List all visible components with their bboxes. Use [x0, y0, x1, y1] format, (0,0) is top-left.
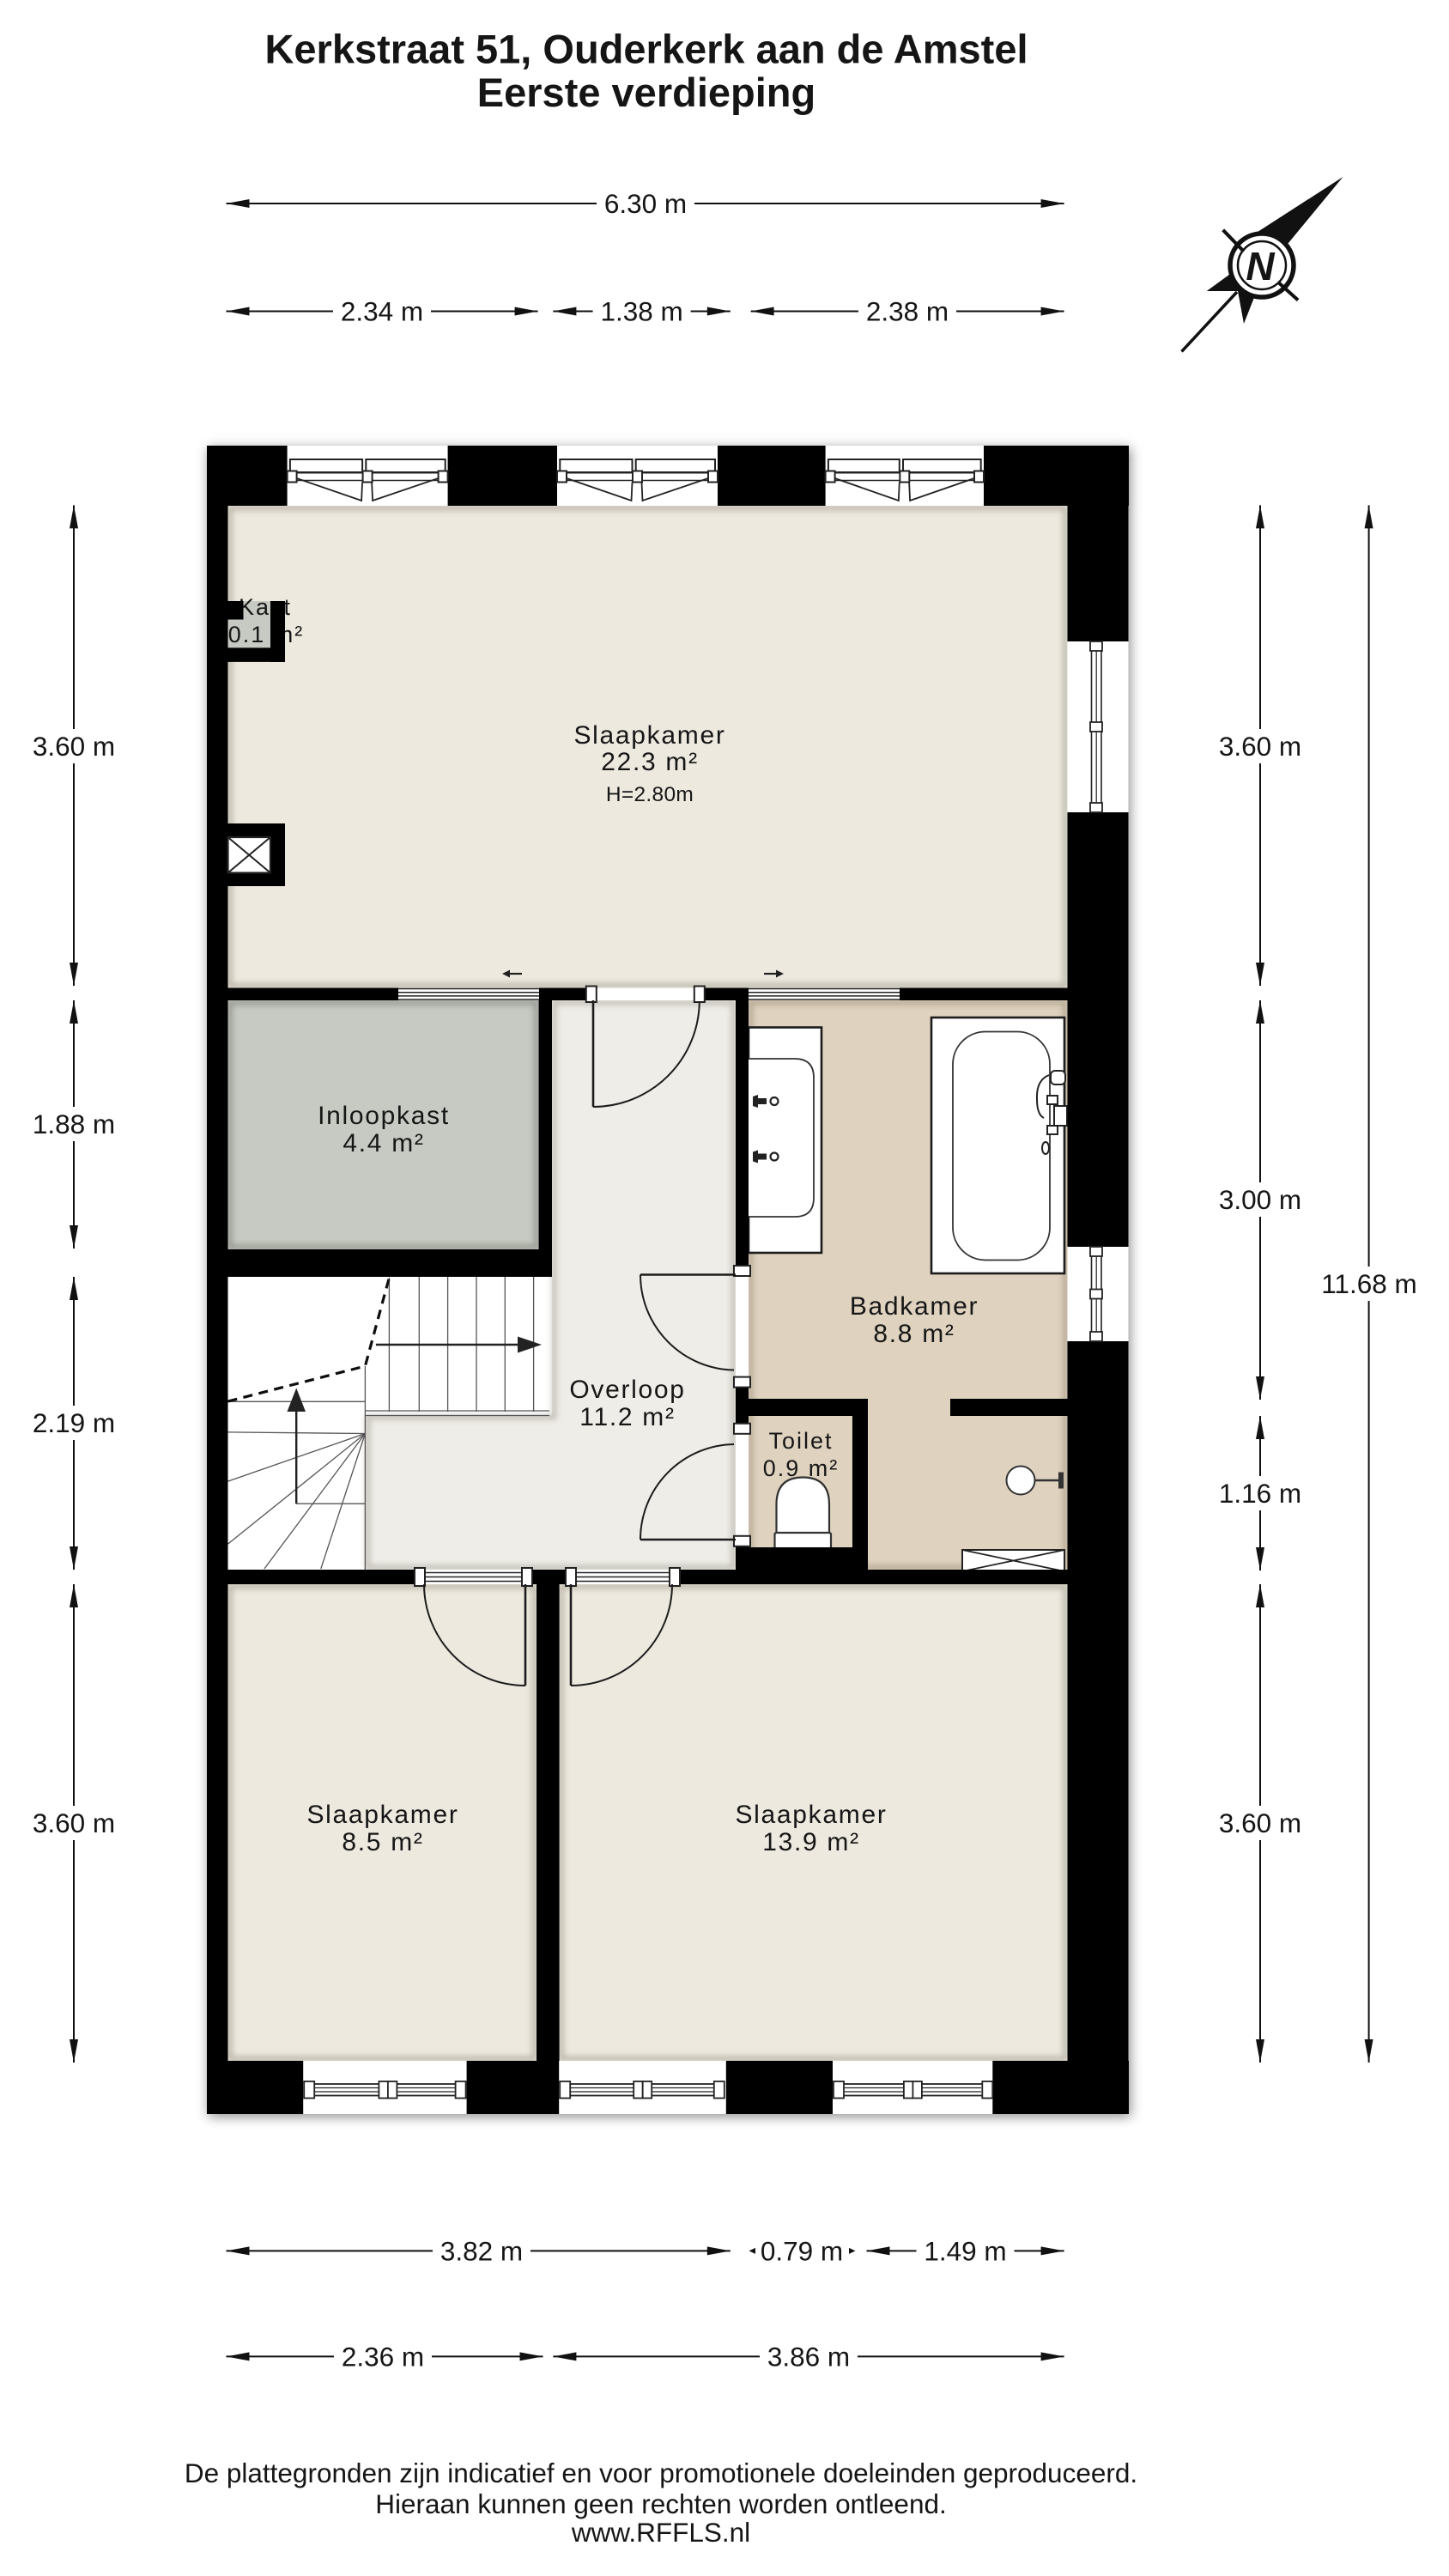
svg-text:3.86 m: 3.86 m — [767, 2341, 850, 2372]
svg-text:3.60 m: 3.60 m — [1219, 1807, 1301, 1838]
svg-text:1.16 m: 1.16 m — [1219, 1478, 1301, 1509]
svg-text:2.34 m: 2.34 m — [341, 296, 423, 327]
svg-text:0.9 m²: 0.9 m² — [763, 1455, 840, 1481]
svg-text:Slaapkamer: Slaapkamer — [573, 721, 725, 750]
svg-text:2.36 m: 2.36 m — [342, 2341, 424, 2372]
svg-text:0.79 m: 0.79 m — [761, 2235, 843, 2266]
svg-text:13.9 m²: 13.9 m² — [762, 1828, 860, 1856]
svg-text:1.49 m: 1.49 m — [924, 2235, 1006, 2266]
svg-text:2.19 m: 2.19 m — [33, 1407, 115, 1438]
svg-text:1.38 m: 1.38 m — [600, 296, 682, 327]
svg-text:N: N — [1246, 244, 1275, 289]
svg-text:Hieraan kunnen geen rechten wo: Hieraan kunnen geen rechten worden ontle… — [375, 2488, 946, 2519]
svg-text:0.1 m²: 0.1 m² — [228, 622, 305, 647]
svg-text:8.8 m²: 8.8 m² — [873, 1320, 955, 1348]
svg-text:Slaapkamer: Slaapkamer — [306, 1801, 458, 1829]
svg-text:3.60 m: 3.60 m — [1219, 731, 1301, 762]
svg-text:1.88 m: 1.88 m — [33, 1109, 115, 1139]
svg-text:Eerste verdieping: Eerste verdieping — [477, 70, 815, 115]
svg-text:3.60 m: 3.60 m — [33, 1807, 115, 1838]
svg-text:Overloop: Overloop — [569, 1376, 685, 1404]
svg-text:3.00 m: 3.00 m — [1219, 1184, 1301, 1215]
svg-text:8.5 m²: 8.5 m² — [342, 1828, 423, 1856]
svg-text:11.68 m: 11.68 m — [1321, 1268, 1416, 1299]
svg-text:2.38 m: 2.38 m — [866, 296, 949, 327]
svg-text:3.60 m: 3.60 m — [33, 731, 115, 762]
svg-text:De plattegronden zijn indicati: De plattegronden zijn indicatief en voor… — [185, 2458, 1137, 2488]
svg-text:www.RFFLS.nl: www.RFFLS.nl — [571, 2517, 750, 2548]
svg-text:Slaapkamer: Slaapkamer — [735, 1801, 887, 1829]
svg-text:6.30 m: 6.30 m — [604, 188, 687, 219]
svg-text:Toilet: Toilet — [768, 1428, 833, 1454]
svg-text:Inloopkast: Inloopkast — [318, 1102, 450, 1130]
svg-text:Kerkstraat 51, Ouderkerk aan d: Kerkstraat 51, Ouderkerk aan de Amstel — [264, 27, 1028, 72]
svg-text:3.82 m: 3.82 m — [440, 2235, 523, 2266]
svg-text:H=2.80m: H=2.80m — [606, 783, 694, 806]
svg-text:11.2 m²: 11.2 m² — [579, 1403, 675, 1431]
svg-text:Badkamer: Badkamer — [850, 1292, 979, 1321]
svg-text:4.4 m²: 4.4 m² — [343, 1129, 424, 1157]
svg-text:22.3 m²: 22.3 m² — [601, 748, 699, 776]
